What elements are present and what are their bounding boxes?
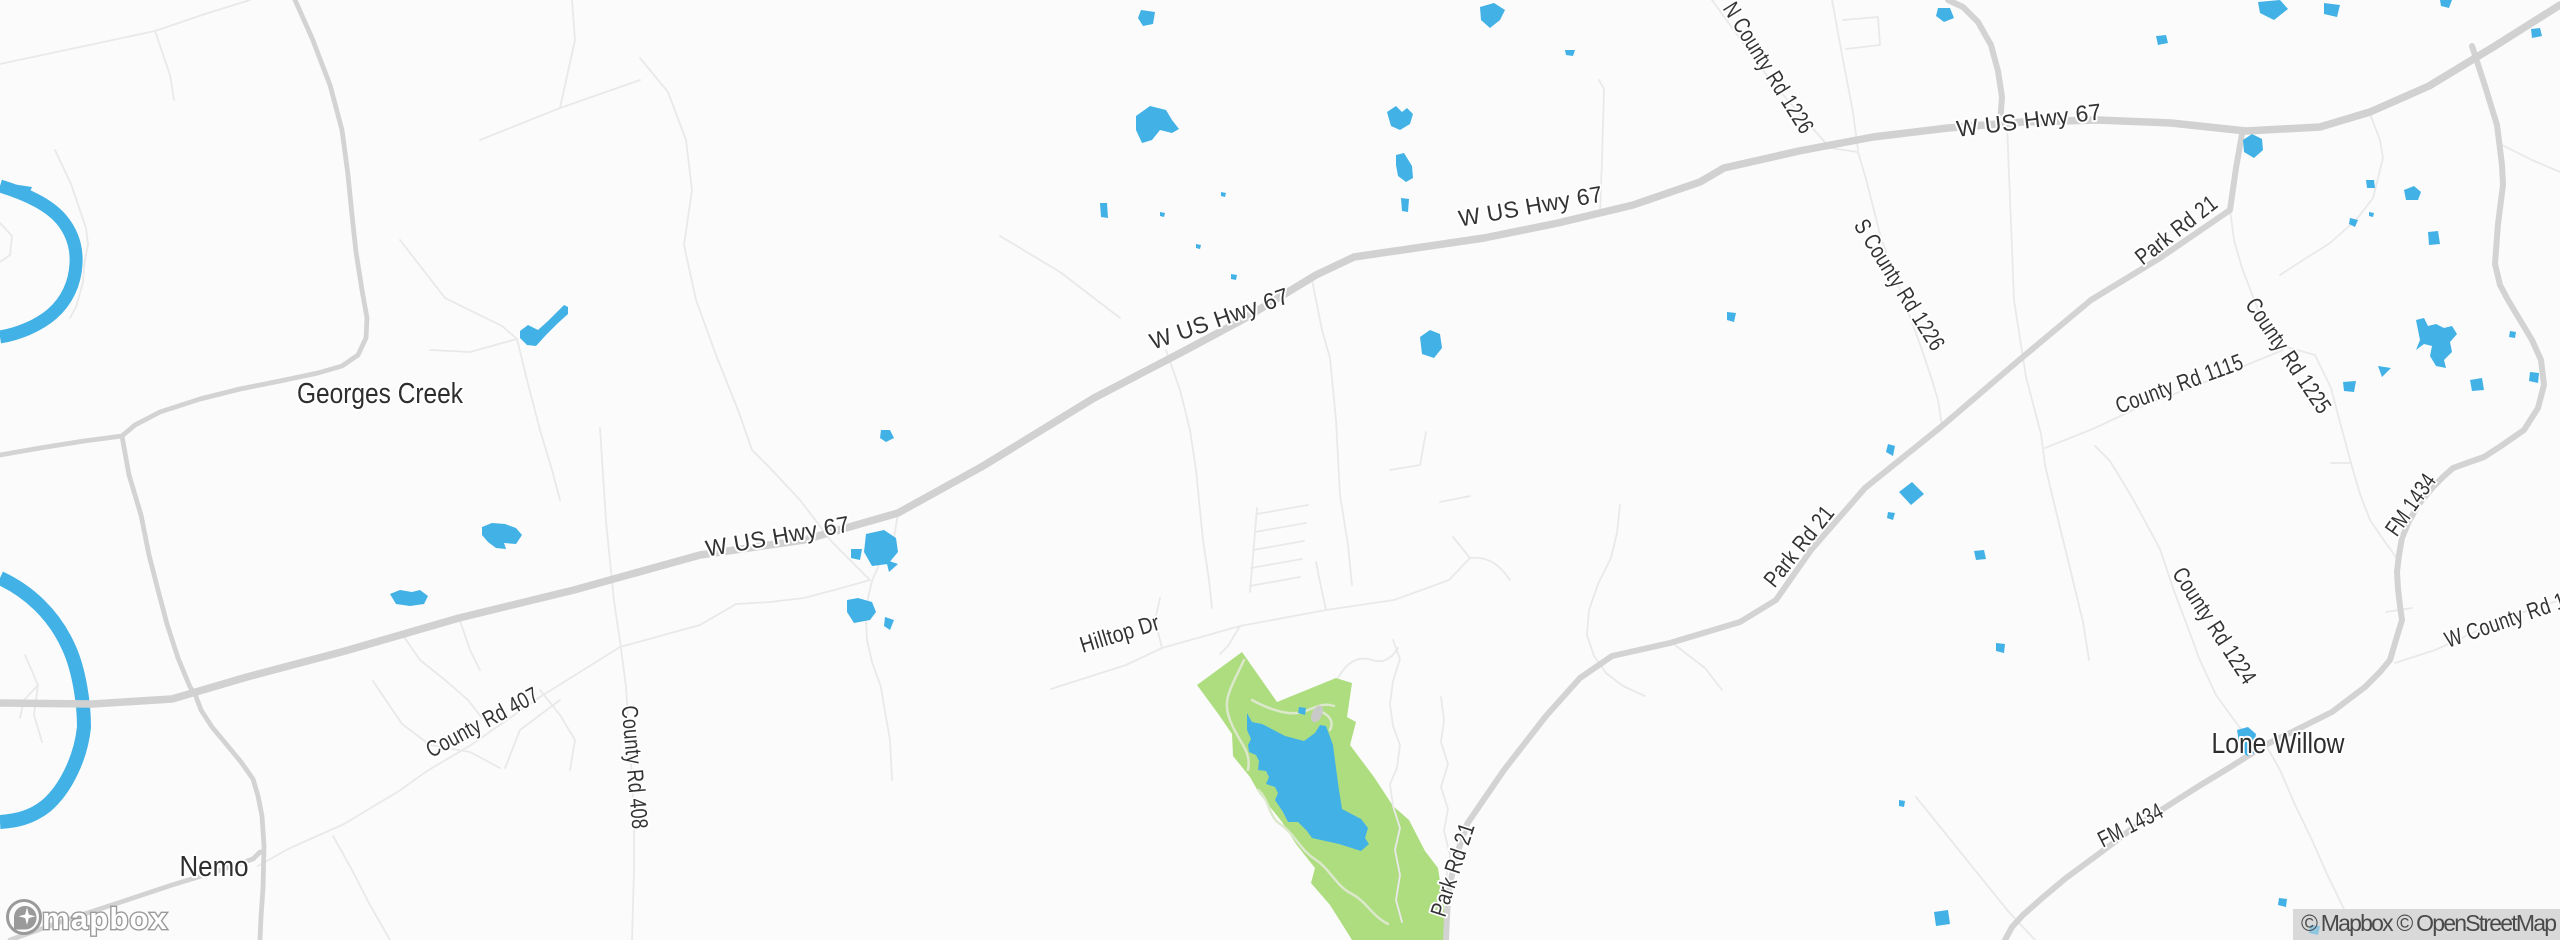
svg-text:Georges Creek: Georges Creek: [297, 378, 463, 410]
svg-text:© Mapbox © OpenStreetMap: © Mapbox © OpenStreetMap: [2301, 910, 2557, 936]
svg-text:Lone Willow: Lone Willow: [2212, 728, 2346, 760]
svg-text:mapbox: mapbox: [42, 901, 168, 936]
svg-text:Nemo: Nemo: [180, 851, 249, 883]
